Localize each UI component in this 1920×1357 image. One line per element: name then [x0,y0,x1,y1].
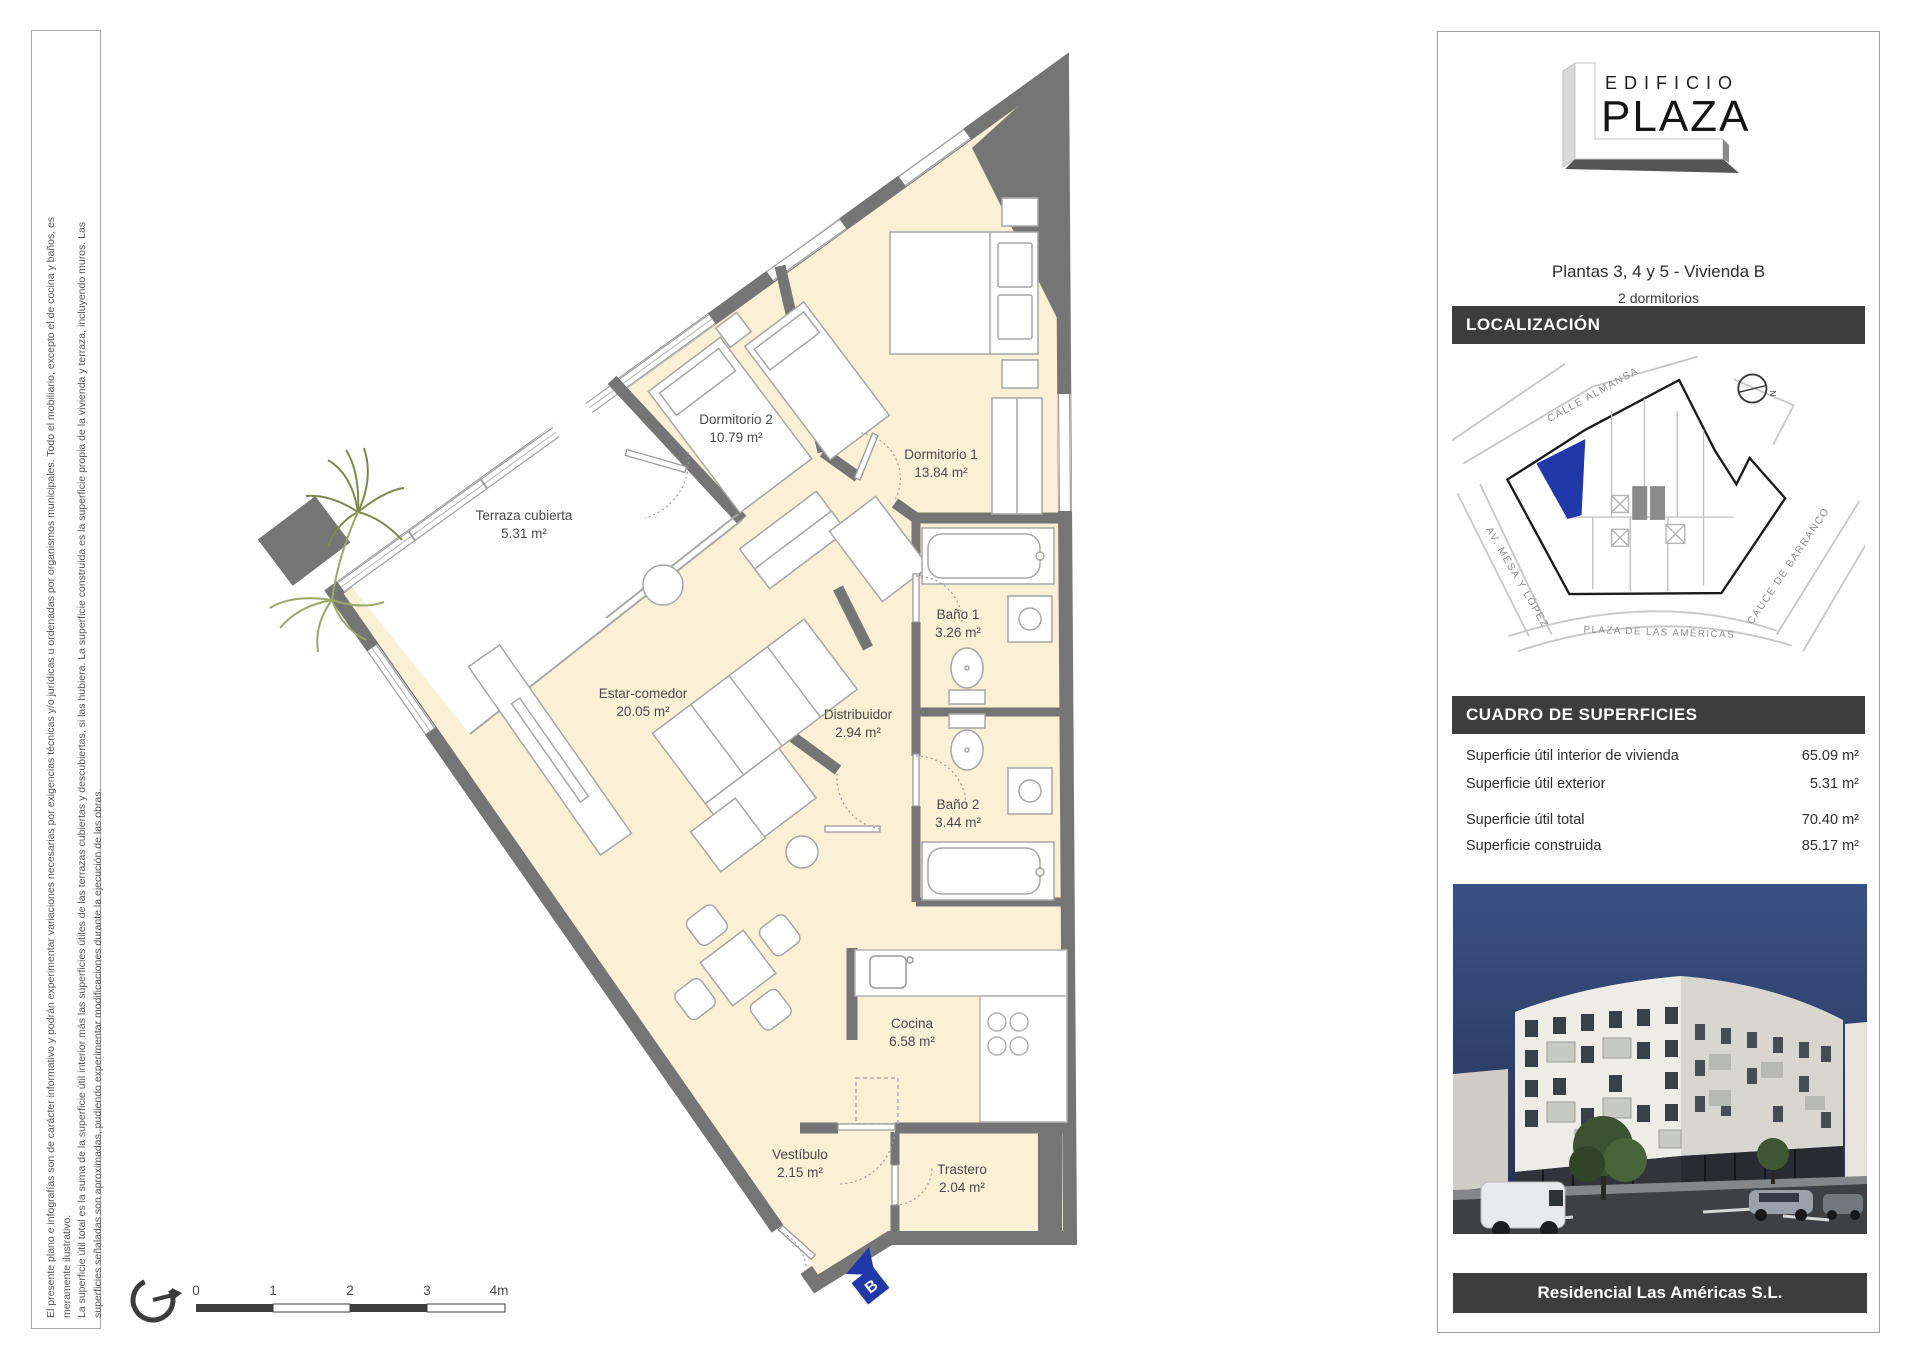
row-label: Superficie útil interior de vivienda [1466,748,1679,764]
info-panel: EDIFICIO PLAZA Plantas 3, 4 y 5 - Vivien… [1437,31,1880,1333]
disclaimer-line-1: El presente plano e infografías son de c… [44,32,60,1318]
wardrobe [992,398,1042,514]
scale-tick: 4m [490,1283,509,1298]
row-value: 85.17 m² [1802,838,1859,854]
logo-bevel [1563,63,1575,167]
kitchen-sink [870,956,913,988]
superficies-table: Superficie útil interior de vivienda 65.… [1452,748,1865,860]
map-compass-icon: N [1738,374,1778,402]
room-area: 2.04 m² [939,1180,985,1195]
plan-sheet-page: { "disclaimer": { "line1": "El presente … [0,0,1920,1357]
room-area: 5.31 m² [501,526,547,541]
scale-tick: 2 [346,1283,354,1298]
table-row: Superficie útil interior de vivienda 65.… [1452,748,1865,770]
edificio-plaza-logo: EDIFICIO PLAZA [1543,58,1773,190]
van [1481,1182,1565,1234]
room-label: Trastero [937,1162,987,1177]
table-row: Superficie útil total 70.40 m² [1452,812,1865,834]
room-label: Terraza cubierta [476,508,573,523]
room-area: 2.94 m² [835,725,881,740]
room-label: Dormitorio 2 [699,412,773,427]
room-label: Vestíbulo [772,1147,828,1162]
side-table [643,565,683,605]
room-area: 2.15 m² [777,1165,823,1180]
superficies-heading: CUADRO DE SUPERFICIES [1452,696,1865,734]
room-label: Distribuidor [824,707,893,722]
room-area: 20.05 m² [616,704,670,719]
room-area: 13.84 m² [914,465,968,480]
logo-shadow [1565,159,1739,173]
logo-top-text: EDIFICIO [1605,73,1739,93]
compass-icon [126,1273,182,1328]
table-row: Superficie útil exterior 5.31 m² [1452,776,1865,798]
developer-footer: Residencial Las Américas S.L. [1453,1273,1867,1313]
disclaimer-text: El presente plano e infografías son de c… [44,32,106,1318]
unit-subtitle: 2 dormitorios [1438,290,1879,306]
scale-tick: 1 [269,1283,277,1298]
bathtub-2 [922,842,1054,900]
row-value: 65.09 m² [1802,748,1859,764]
row-label: Superficie construida [1466,838,1601,854]
washbasin-2 [1008,768,1052,814]
row-label: Superficie útil exterior [1466,776,1605,792]
bathtub-1 [922,528,1054,584]
room-label: Estar-comedor [599,686,688,701]
location-map: N CALLE ALMANSA AV. MESA Y LÓPEZ PLAZA D… [1452,350,1865,656]
room-area: 3.44 m² [935,815,981,830]
floor-plan: Terraza cubierta 5.31 m² Dormitorio 2 10… [100,40,1160,1340]
street-label-bottom: PLAZA DE LAS AMÉRICAS [1583,625,1735,641]
unit-title: Plantas 3, 4 y 5 - Vivienda B [1438,262,1879,282]
washbasin-1 [1008,596,1052,642]
building-photo [1453,884,1867,1234]
disclaimer-line-3: La superficie útil total es la suma de l… [75,32,91,1318]
room-label: Cocina [891,1016,934,1031]
scale-bar: 0 1 2 3 4m [192,1283,508,1312]
map-compass-n: N [1768,390,1778,396]
localizacion-heading: LOCALIZACIÓN [1452,306,1865,344]
room-label: Baño 1 [937,607,980,622]
scale-tick: 3 [423,1283,431,1298]
room-area: 3.26 m² [935,625,981,640]
logo-edge [1723,139,1729,163]
room-label: Dormitorio 1 [904,447,978,462]
room-area: 6.58 m² [889,1034,935,1049]
scale-tick: 0 [192,1283,200,1298]
table-row: Superficie construida 85.17 m² [1452,838,1865,860]
row-label: Superficie útil total [1466,812,1584,828]
disclaimer-line-2: meramente ilustrativo. [60,32,76,1318]
toilet-1 [949,648,985,704]
coffee-table [786,836,818,868]
room-label: Baño 2 [937,797,980,812]
room-area: 10.79 m² [709,430,763,445]
row-value: 70.40 m² [1802,812,1859,828]
logo-main-text: PLAZA [1601,92,1750,141]
row-value: 5.31 m² [1810,776,1859,792]
toilet-2 [949,714,985,770]
